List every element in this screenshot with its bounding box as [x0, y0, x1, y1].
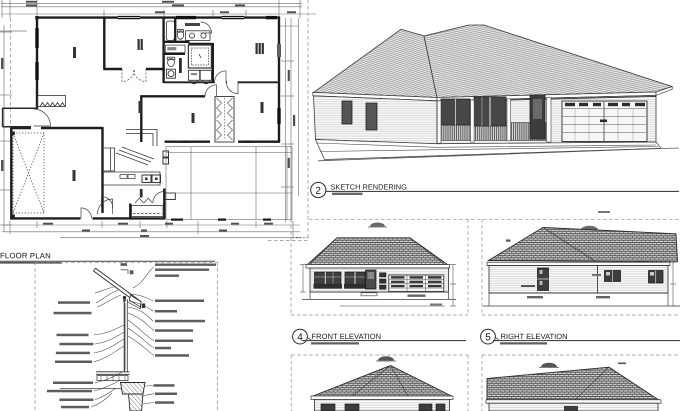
svg-text:5: 5 — [485, 332, 491, 343]
svg-text:RIGHT ELEVATION: RIGHT ELEVATION — [500, 332, 567, 341]
svg-text:SKETCH RENDERING: SKETCH RENDERING — [330, 183, 407, 192]
svg-text:4: 4 — [297, 332, 303, 343]
svg-text:FLOOR PLAN: FLOOR PLAN — [0, 251, 51, 260]
svg-text:FRONT ELEVATION: FRONT ELEVATION — [311, 332, 381, 341]
svg-text:2: 2 — [315, 186, 321, 197]
